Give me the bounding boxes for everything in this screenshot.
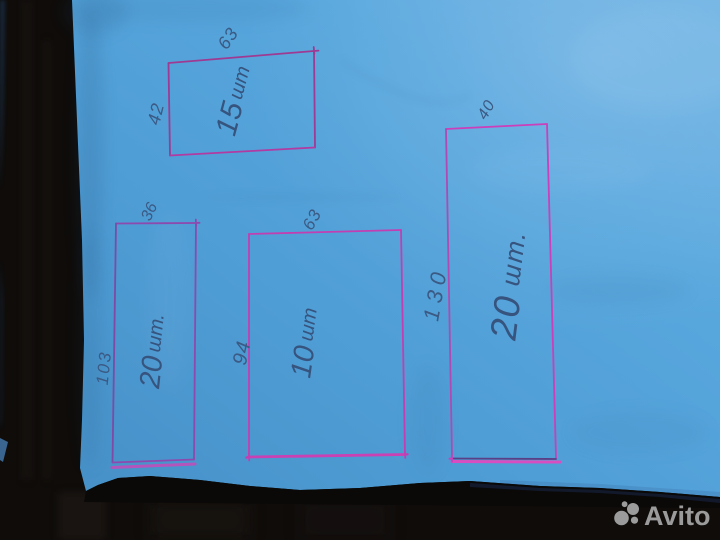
svg-text:103: 103 bbox=[93, 350, 115, 386]
svg-text:Avito: Avito bbox=[644, 501, 711, 531]
